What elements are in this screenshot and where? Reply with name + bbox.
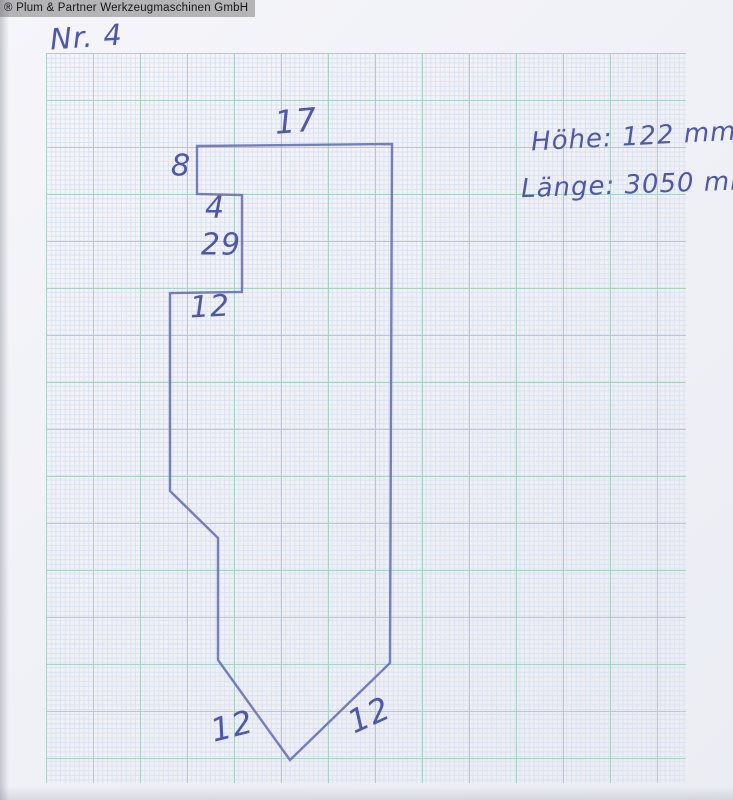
profile-outline-drawing (0, 0, 733, 800)
dimension-label: 12 (189, 288, 231, 325)
dimension-label: 17 (273, 100, 319, 142)
copyright-watermark: ® Plum & Partner Werkzeugmaschinen GmbH (0, 0, 255, 17)
dimension-label: 4 (205, 191, 225, 226)
photographed-sketch-page: Nr. 4 Höhe: 122 mm Länge: 3050 mm 178429… (0, 0, 733, 800)
dimension-label: 8 (170, 148, 191, 184)
paper-edge-shadow (0, 0, 9, 800)
sketch-number-label: Nr. 4 (49, 18, 124, 57)
dimension-label: 29 (201, 228, 241, 263)
